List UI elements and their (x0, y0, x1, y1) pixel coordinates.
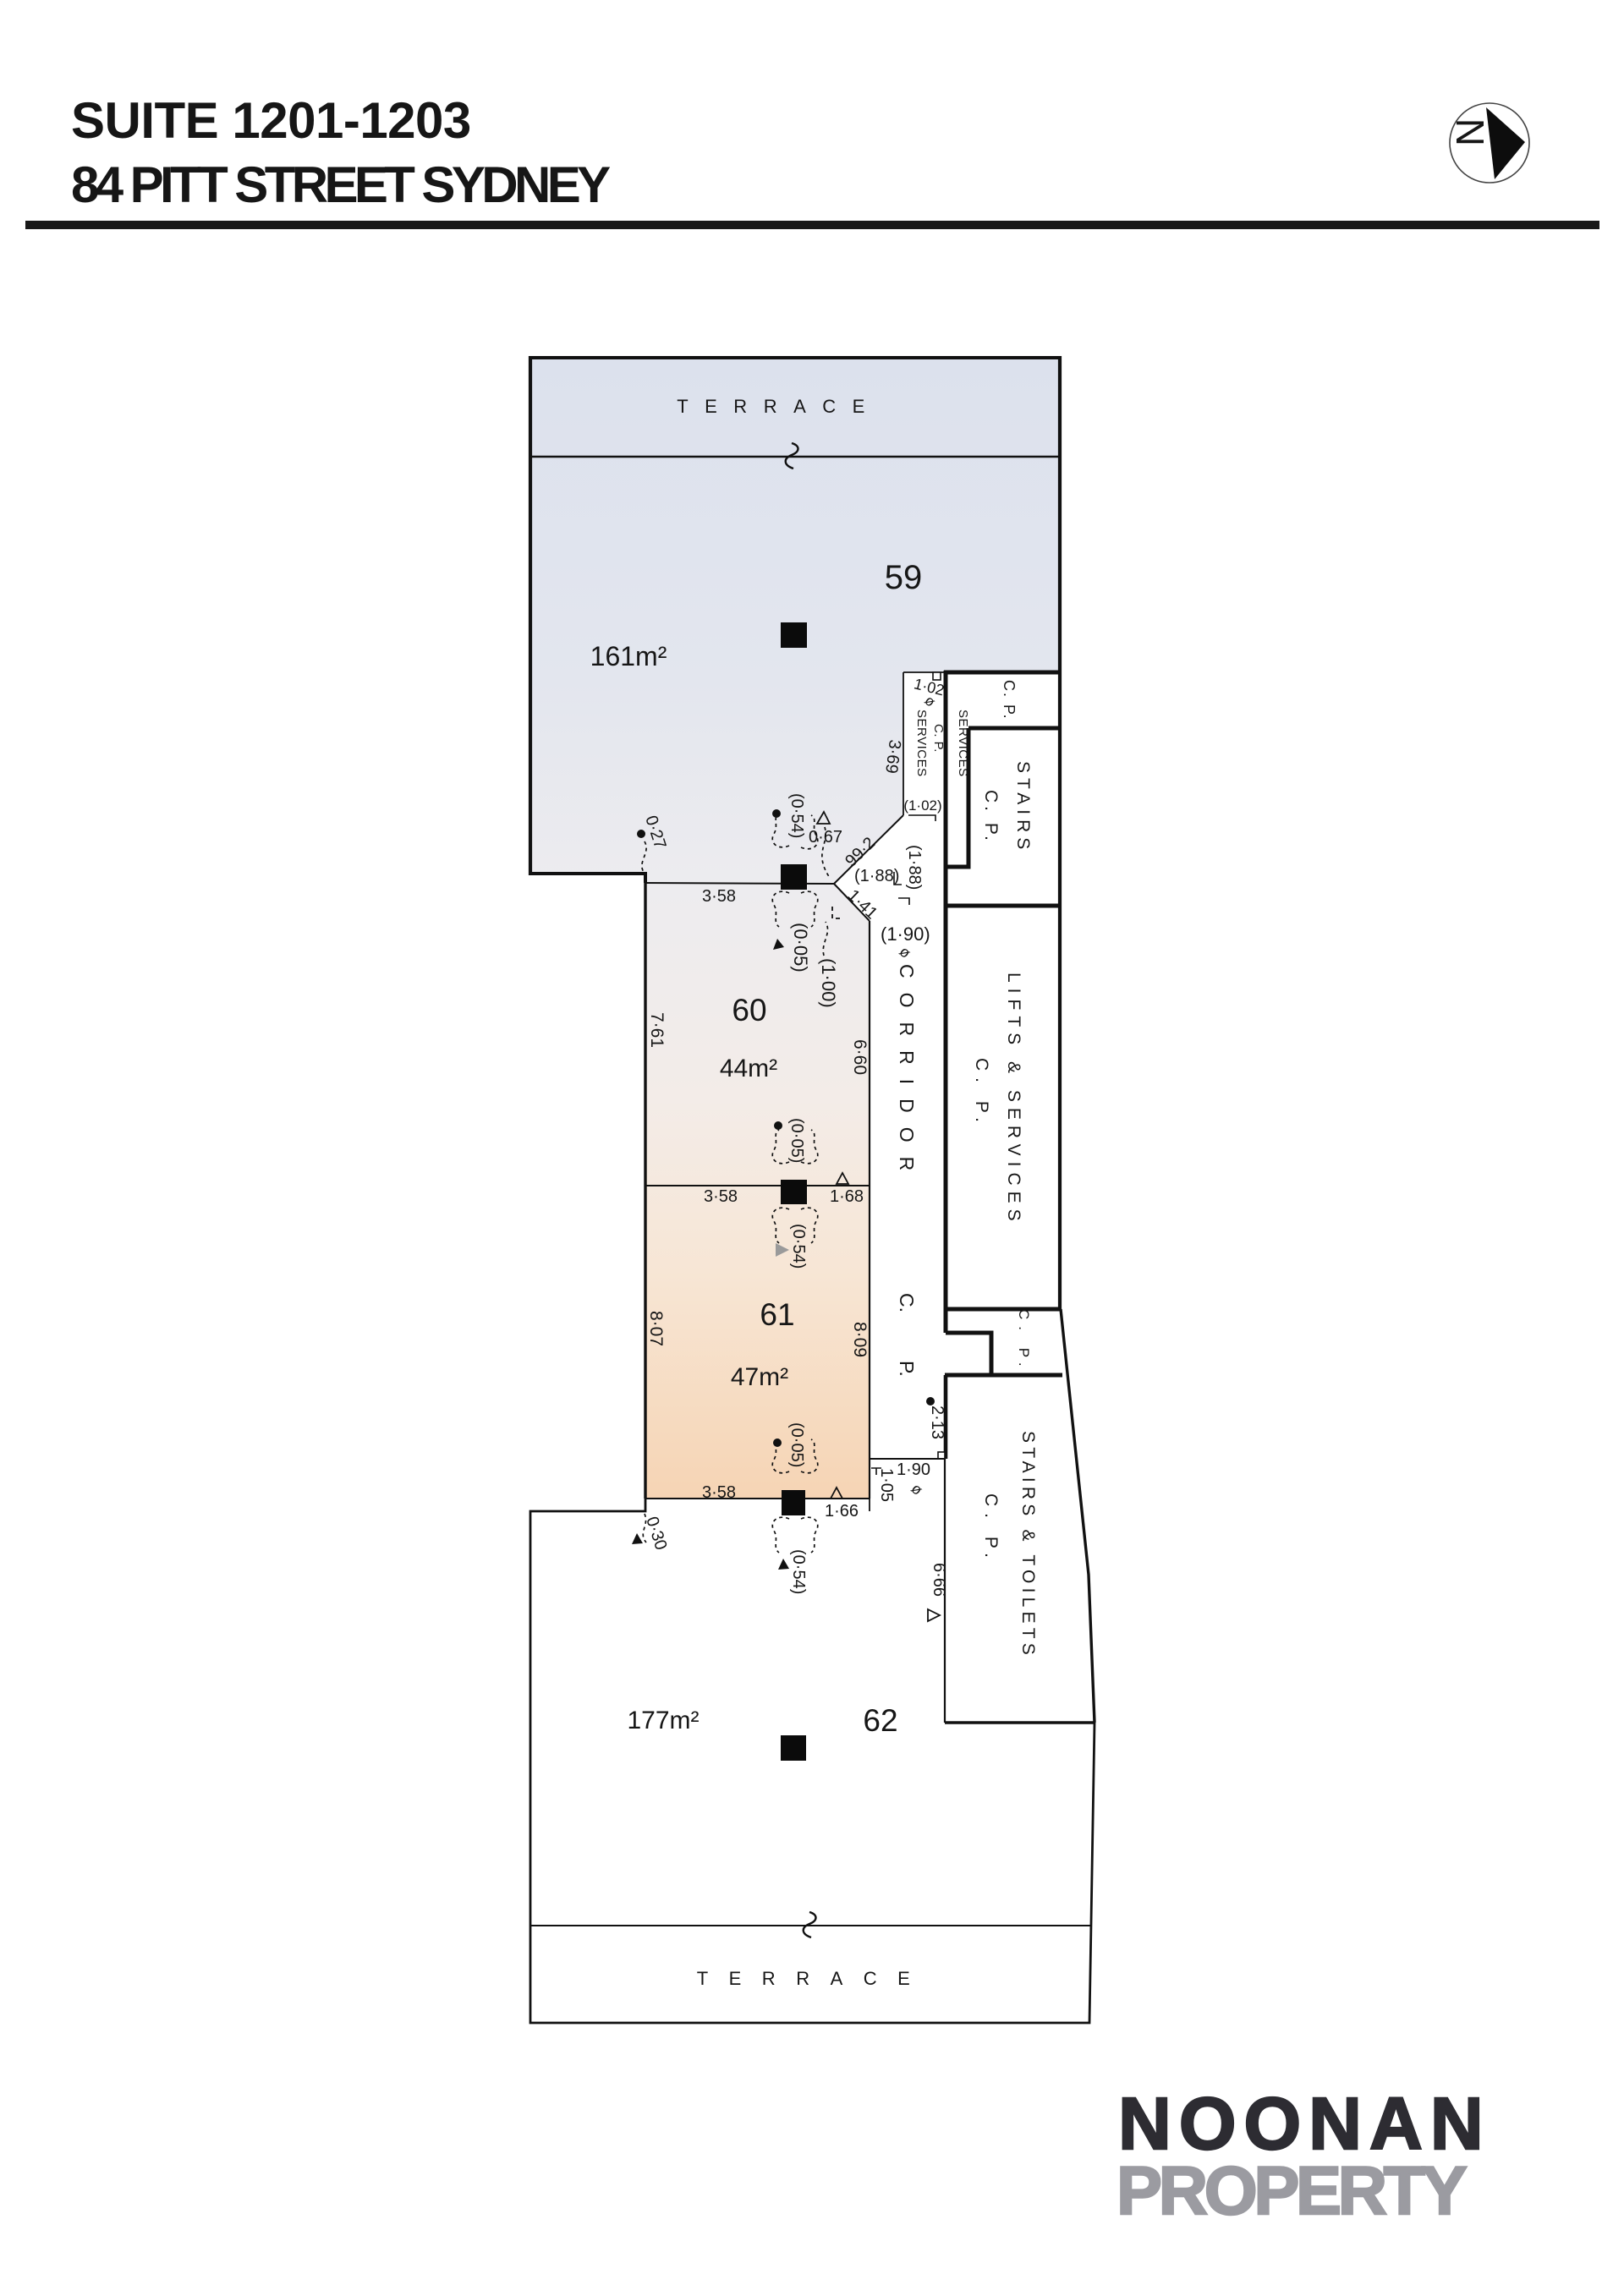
svg-text:3·58: 3·58 (702, 887, 736, 906)
svg-text:6·66: 6·66 (930, 1563, 948, 1597)
svg-text:(0·54): (0·54) (789, 1549, 808, 1594)
svg-text:3·58: 3·58 (704, 1187, 738, 1206)
svg-text:1·66: 1·66 (825, 1502, 859, 1521)
svg-text:(1·88): (1·88) (905, 845, 924, 890)
svg-text:ø: ø (896, 943, 913, 962)
svg-text:ø: ø (908, 1480, 925, 1499)
svg-text:6·60: 6·60 (850, 1039, 870, 1075)
svg-text:STAIRS & TOILETS: STAIRS & TOILETS (1018, 1431, 1038, 1659)
svg-text:(1·00): (1·00) (818, 958, 839, 1008)
svg-text:SERVICES: SERVICES (956, 710, 970, 777)
svg-text:(1·02): (1·02) (903, 797, 941, 814)
svg-text:(0·54): (0·54) (789, 1224, 808, 1269)
svg-text:8·09: 8·09 (850, 1322, 870, 1357)
svg-text:62: 62 (863, 1703, 897, 1738)
svg-text:7·61: 7·61 (647, 1012, 667, 1048)
svg-text:1·05: 1·05 (877, 1468, 896, 1502)
svg-text:(1·90): (1·90) (881, 923, 930, 945)
svg-text:59: 59 (885, 559, 923, 596)
svg-text:ø: ø (921, 693, 938, 710)
svg-text:161m²: 161m² (590, 641, 667, 671)
svg-text:C.: C. (896, 1293, 918, 1312)
svg-text:0·67: 0·67 (809, 828, 842, 847)
svg-text:TERRACE: TERRACE (697, 1968, 931, 1989)
svg-text:C. P.: C. P. (1016, 1309, 1032, 1373)
svg-text:8·07: 8·07 (646, 1311, 666, 1346)
svg-text:(1·88): (1·88) (854, 867, 899, 885)
svg-text:0·30: 0·30 (642, 1515, 670, 1553)
svg-text:(0·05): (0·05) (787, 1118, 806, 1163)
svg-text:N: N (1448, 118, 1492, 146)
svg-text:(0·05): (0·05) (790, 923, 811, 973)
svg-text:177m²: 177m² (627, 1707, 699, 1734)
svg-text:44m²: 44m² (720, 1055, 777, 1082)
svg-text:1·90: 1·90 (897, 1460, 930, 1479)
svg-text:60: 60 (732, 993, 766, 1027)
svg-text:(0·54): (0·54) (787, 793, 806, 838)
svg-text:C. P.: C. P. (972, 1058, 991, 1129)
svg-text:C. P.: C. P. (981, 1493, 1001, 1564)
svg-text:3·58: 3·58 (702, 1483, 736, 1502)
svg-text:C. P.: C. P. (981, 790, 1001, 844)
svg-text:LIFTS & SERVICES: LIFTS & SERVICES (1004, 973, 1023, 1227)
svg-text:2·13: 2·13 (928, 1406, 946, 1439)
svg-text:61: 61 (760, 1297, 794, 1332)
svg-text:TERRACE: TERRACE (677, 396, 881, 417)
svg-text:C. P.: C. P. (931, 724, 946, 753)
svg-text:47m²: 47m² (731, 1363, 788, 1391)
svg-text:CORRIDOR: CORRIDOR (896, 964, 918, 1185)
svg-text:C. P.: C. P. (1001, 680, 1018, 721)
svg-text:1·68: 1·68 (830, 1187, 864, 1206)
svg-text:STAIRS: STAIRS (1013, 761, 1033, 854)
svg-text:SERVICES: SERVICES (914, 710, 929, 777)
svg-text:P.: P. (896, 1361, 918, 1377)
svg-text:(0·05): (0·05) (787, 1422, 806, 1467)
